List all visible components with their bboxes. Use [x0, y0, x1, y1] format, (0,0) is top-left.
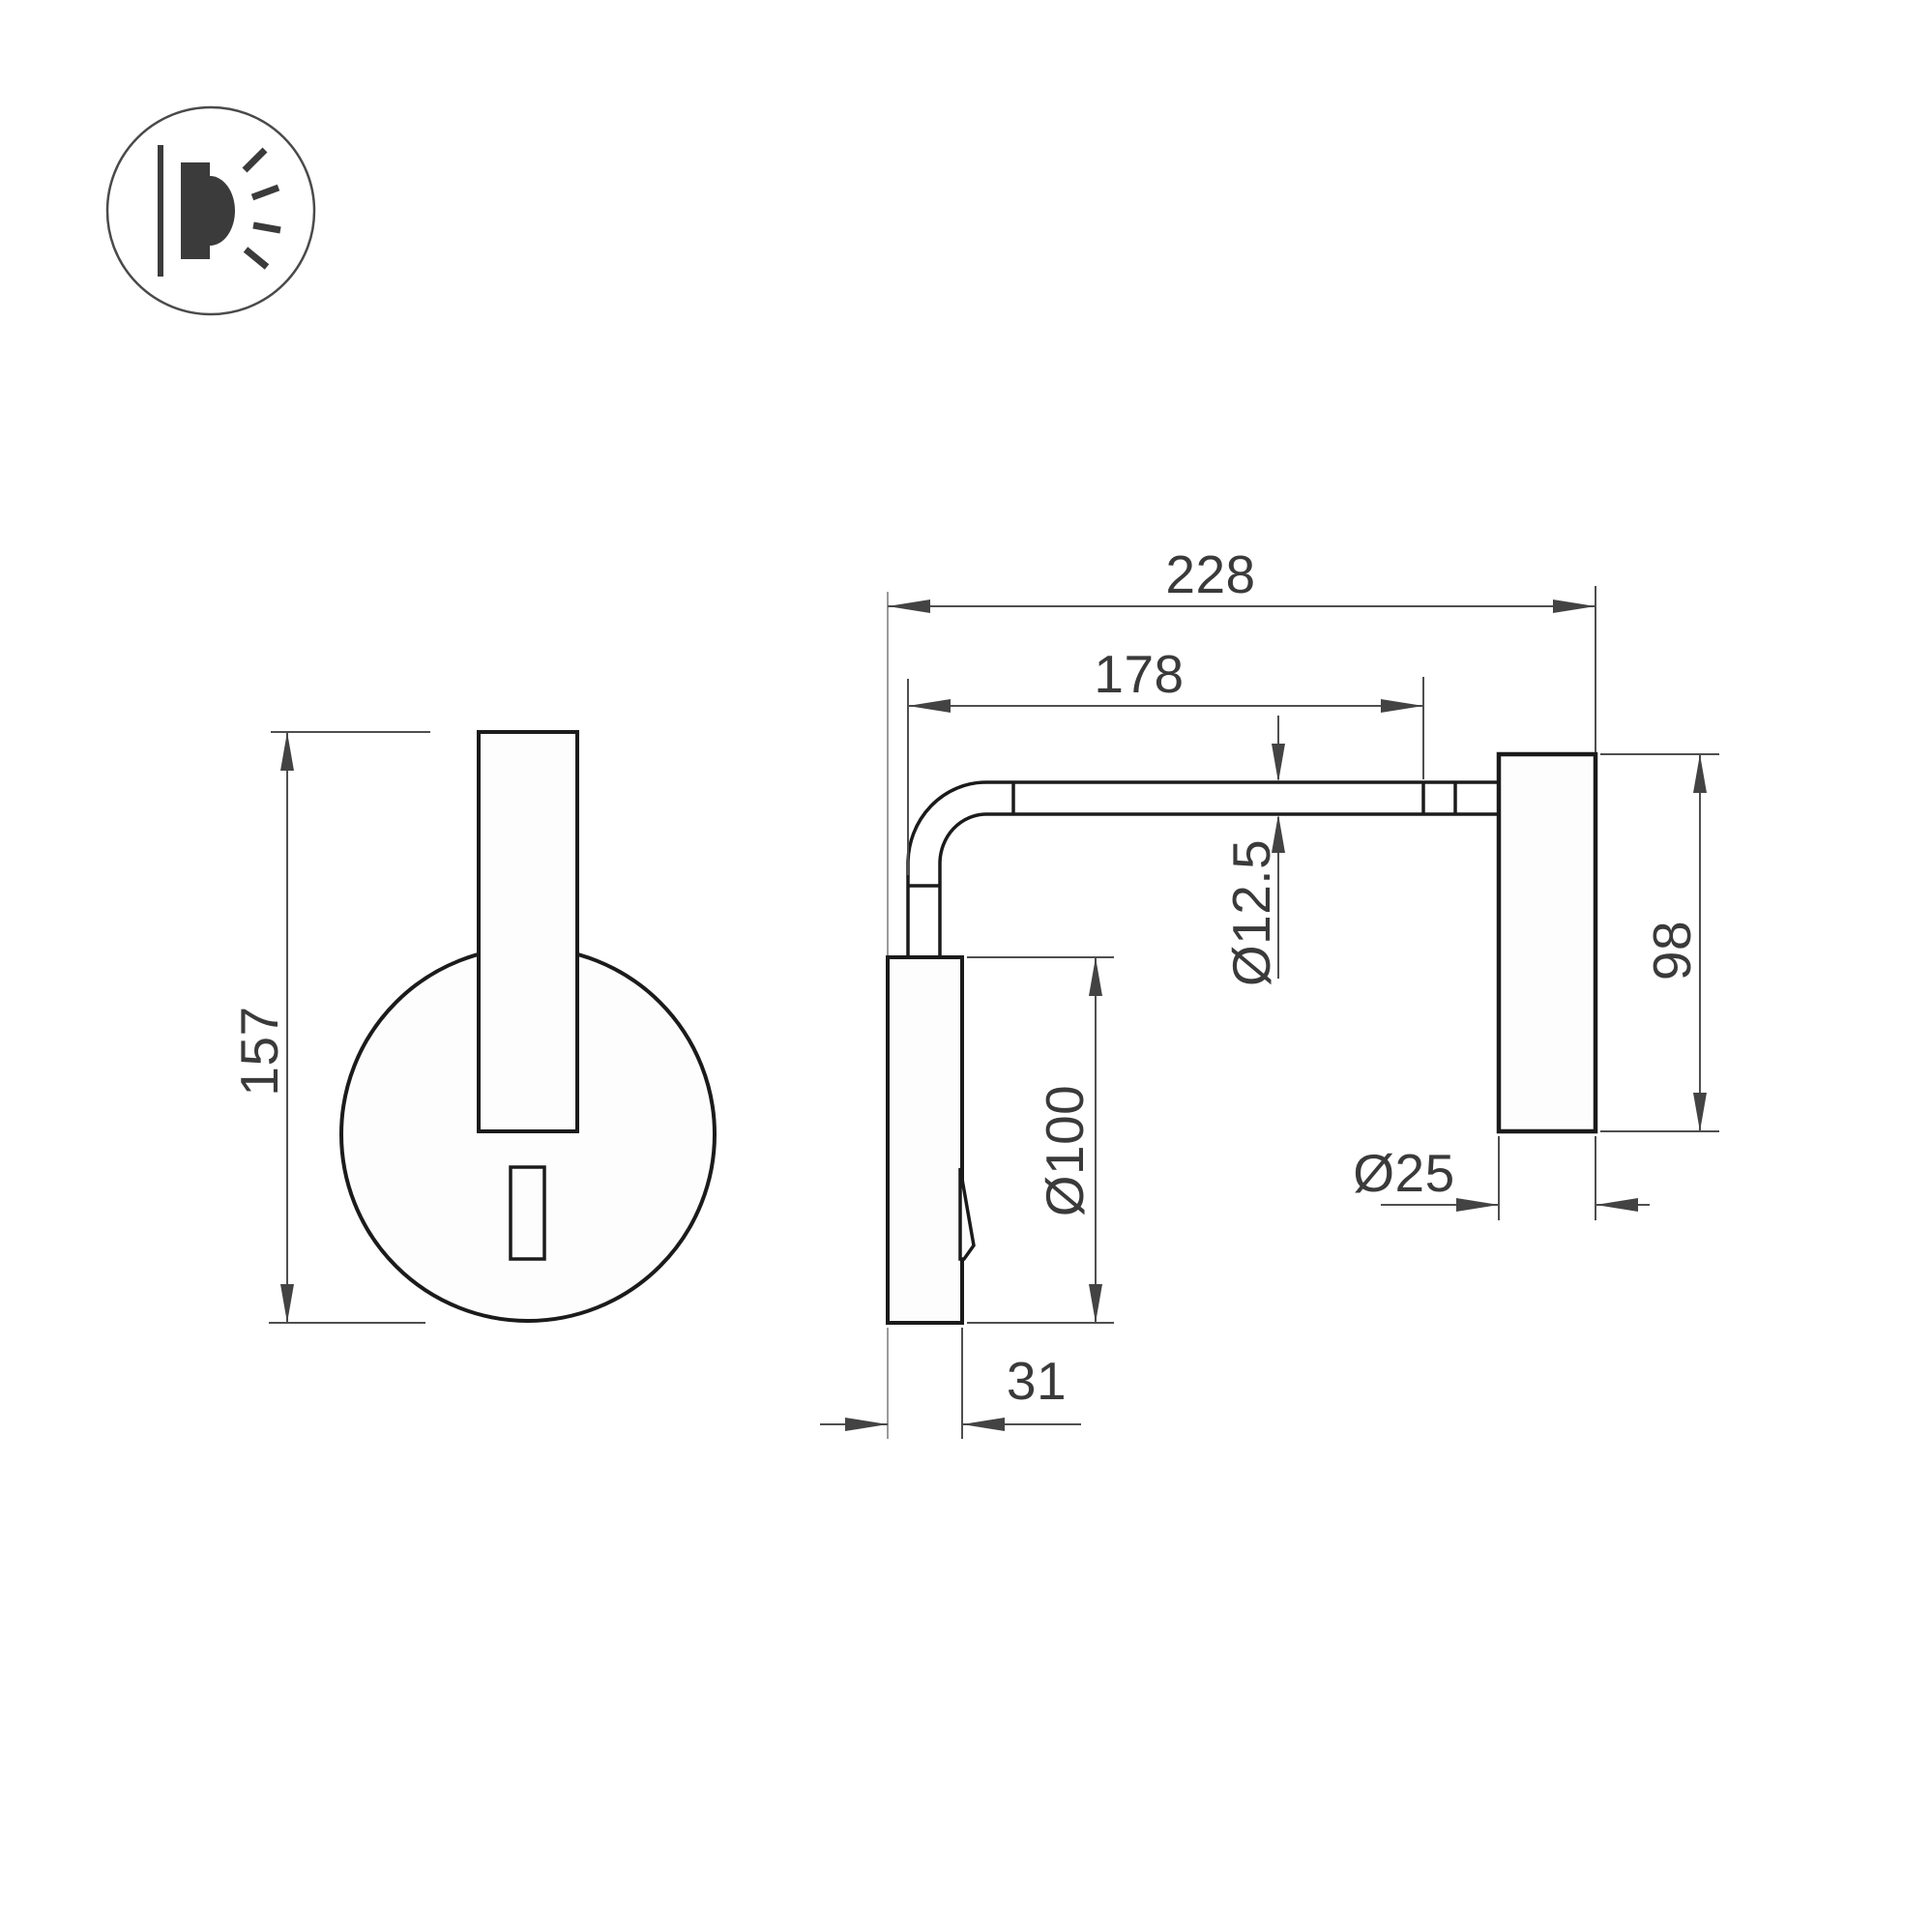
- dimension-label-d25: Ø25: [1353, 1143, 1454, 1203]
- dimension-plate-diameter: Ø100: [967, 957, 1114, 1323]
- dimension-label-98: 98: [1642, 921, 1702, 981]
- front-lamp-tube: [479, 732, 577, 1131]
- lamp-technical-drawing: 157 228 178: [0, 0, 1932, 1932]
- dimension-label-178: 178: [1094, 644, 1184, 704]
- arrow-right-icon: [1456, 1198, 1499, 1212]
- light-ray-icon: [253, 225, 280, 230]
- icon-lamp-body: [181, 162, 210, 259]
- arrow-left-icon: [888, 600, 930, 613]
- dimension-plate-depth: 31: [820, 1328, 1081, 1439]
- dimension-label-228: 228: [1165, 544, 1255, 604]
- dimension-head-diameter: Ø25: [1353, 1136, 1650, 1220]
- dimension-head-height: 98: [1600, 754, 1719, 1131]
- arrow-down-icon: [1272, 744, 1285, 782]
- arrow-left-icon: [962, 1418, 1005, 1431]
- side-toggle-switch: [960, 1168, 974, 1259]
- side-wall-plate: [888, 957, 962, 1323]
- arrow-down-icon: [1693, 1093, 1707, 1131]
- arrow-right-icon: [845, 1418, 888, 1431]
- dimension-arm-tube-diameter: Ø12.5: [1221, 716, 1285, 986]
- drawing-canvas: 157 228 178: [0, 0, 1932, 1932]
- arrow-left-icon: [908, 699, 951, 713]
- icon-wall-line: [158, 145, 163, 277]
- dimension-label-31: 31: [1007, 1351, 1067, 1411]
- front-view: [341, 732, 715, 1321]
- dimension-label-d100: Ø100: [1035, 1085, 1095, 1217]
- bend-outer-curve: [908, 782, 986, 864]
- dimension-label-157: 157: [229, 1006, 289, 1096]
- side-lamp-head: [1499, 754, 1595, 1131]
- arrow-left-icon: [1595, 1198, 1638, 1212]
- arrow-up-icon: [1693, 754, 1707, 793]
- bend-inner-curve: [940, 814, 986, 864]
- dimension-arm-length: 178: [908, 644, 1423, 875]
- arrow-up-icon: [1089, 957, 1102, 996]
- arrow-down-icon: [1089, 1284, 1102, 1323]
- dimension-label-d12-5: Ø12.5: [1221, 839, 1281, 986]
- arrow-right-icon: [1553, 600, 1595, 613]
- front-toggle-switch: [511, 1167, 544, 1259]
- arrow-up-icon: [280, 732, 294, 771]
- wall-lamp-light-icon: [107, 107, 314, 314]
- arrow-down-icon: [280, 1284, 294, 1323]
- arrow-right-icon: [1381, 699, 1423, 713]
